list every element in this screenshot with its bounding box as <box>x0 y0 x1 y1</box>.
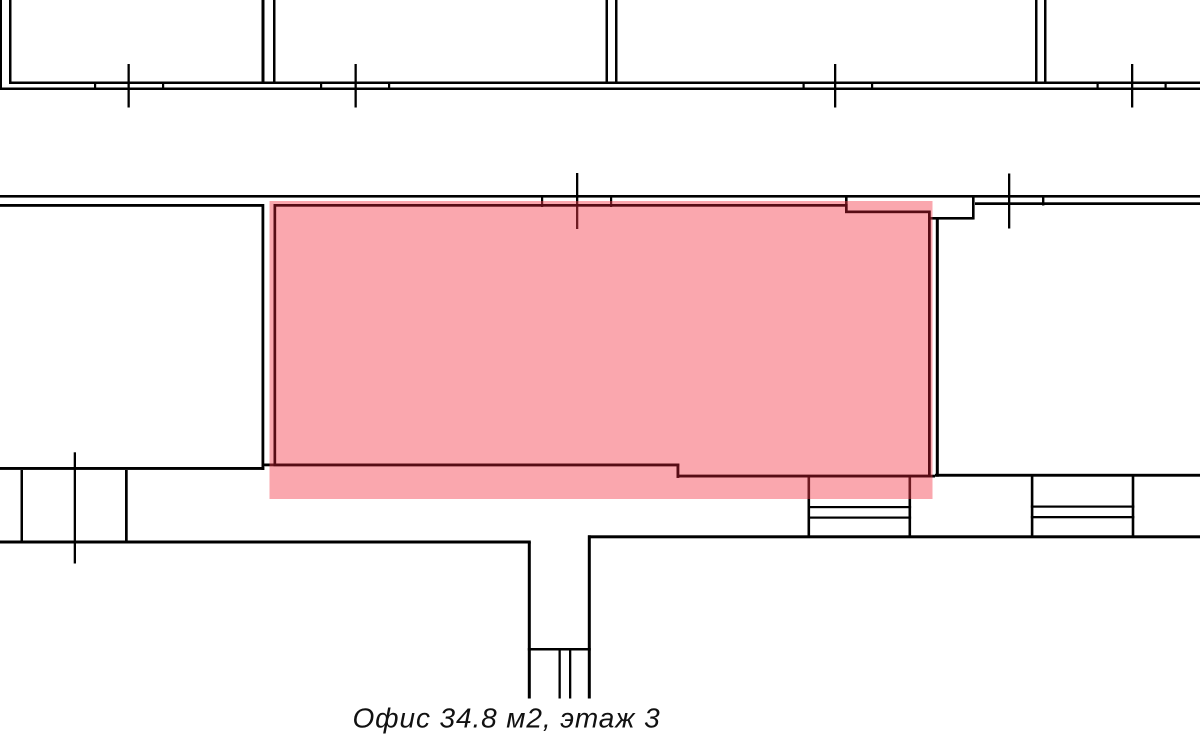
svg-text:Офис 34.8 м2, этаж 3: Офис 34.8 м2, этаж 3 <box>353 703 661 734</box>
